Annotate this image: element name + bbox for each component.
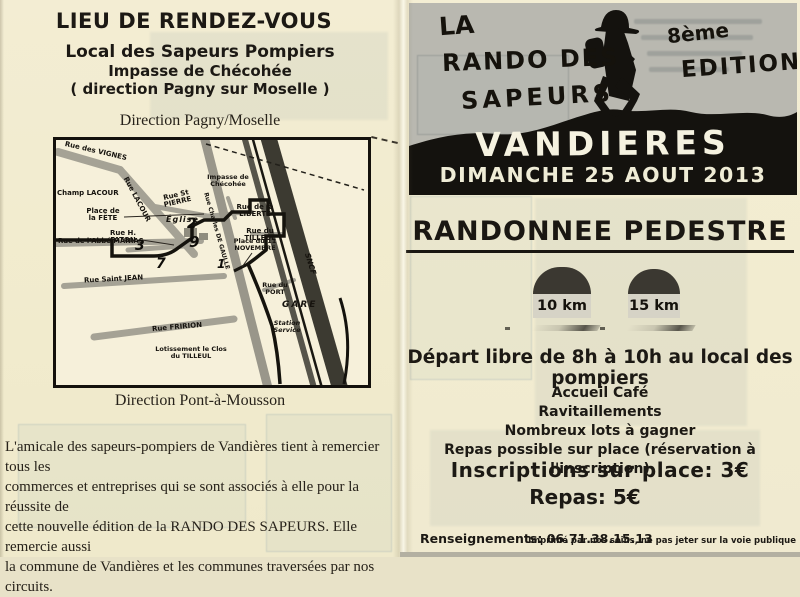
map-label: Station Service — [268, 320, 306, 334]
circuit-number: 7 — [156, 256, 166, 272]
milestone-label: 10 km — [533, 294, 591, 318]
map-caption-top: Direction Pagny/Moselle — [0, 112, 400, 130]
event-title-text: RANDONNEE PEDESTRE — [406, 216, 793, 253]
milestone-label: 15 km — [628, 294, 680, 318]
building-block — [199, 233, 208, 240]
circuit-number: 9 — [189, 233, 199, 251]
scanned-flyer: { "left": { "title": "LIEU DE RENDEZ-VOU… — [0, 0, 800, 557]
scan-edge-strip — [400, 552, 800, 557]
map-label: Rue du PORT — [260, 282, 290, 296]
milestone-dome — [533, 267, 591, 294]
circuit-number: 1 — [217, 257, 225, 271]
venue-street: Impasse de Chécohée — [0, 62, 400, 80]
event-title: RANDONNEE PEDESTRE — [400, 216, 800, 253]
milestone-shadow — [626, 325, 695, 331]
town-map: Rue des VIGNES Champ LACOUR Rue LACOUR R… — [53, 137, 371, 388]
header-artwork: LA RANDO DES SAPEURS 8ème EDITION VANDIE… — [409, 3, 797, 195]
paragraph-line: la commune de Vandières et les communes … — [5, 557, 397, 597]
map-label: GARE — [282, 301, 317, 310]
amenity-item: Nombreux lots à gagner — [400, 422, 800, 441]
paragraph-line: cette nouvelle édition de la RANDO DES S… — [5, 517, 397, 557]
left-page: LIEU DE RENDEZ-VOUS Local des Sapeurs Po… — [0, 0, 400, 557]
thanks-paragraph: L'amicale des sapeurs-pompiers de Vandiè… — [5, 437, 397, 597]
milestone-10km: 10 km — [533, 267, 591, 318]
map-label: Rue de la LIBERTÉ — [234, 204, 276, 219]
map-label: Impasse de Chécohée — [206, 174, 250, 188]
map-label: Champ LACOUR — [57, 190, 119, 197]
map-label: Place du 11 NOVEMBRE — [230, 238, 280, 252]
circuit-number: 2 — [187, 216, 197, 232]
milestone-shadow — [531, 325, 600, 331]
amenity-item: Accueil Café — [400, 384, 800, 403]
map-label: Place de la FÊTE — [82, 208, 124, 223]
event-date: DIMANCHE 25 AOUT 2013 — [409, 163, 797, 187]
price-meal: Repas: 5€ — [400, 485, 800, 509]
paragraph-line: L'amicale des sapeurs-pompiers de Vandiè… — [5, 437, 397, 477]
venue-name: Local des Sapeurs Pompiers — [0, 42, 400, 62]
price-inscription: Inscriptions sur place: 3€ — [400, 458, 800, 482]
scan-edge-shadow — [0, 0, 4, 557]
ground-mark — [600, 327, 605, 330]
page-title: LIEU DE RENDEZ-VOUS — [0, 9, 400, 33]
map-label: Lotissement le Clos du TILLEUL — [154, 346, 228, 360]
paragraph-line: commerces et entreprises qui se sont ass… — [5, 477, 397, 517]
right-page: LA RANDO DES SAPEURS 8ème EDITION VANDIE… — [400, 0, 800, 557]
town-name: VANDIERES — [409, 122, 797, 164]
footer-note: Imprimé par nos soins, ne pas jeter sur … — [528, 536, 796, 546]
venue-direction: ( direction Pagny sur Moselle ) — [0, 80, 400, 98]
milestone-15km: 15 km — [628, 269, 680, 318]
map-label: Rue de l'Abbé MANIAS — [58, 238, 144, 245]
milestone-dome — [628, 269, 680, 294]
amenity-item: Ravitaillements — [400, 403, 800, 422]
circuit-number: 3 — [135, 238, 145, 254]
depart-info: Départ libre de 8h à 10h au local des po… — [400, 347, 800, 389]
page-fold — [393, 0, 413, 557]
map-caption-bottom: Direction Pont-à-Mousson — [0, 392, 400, 410]
ground-mark — [505, 327, 510, 330]
title-la: LA — [438, 10, 475, 41]
